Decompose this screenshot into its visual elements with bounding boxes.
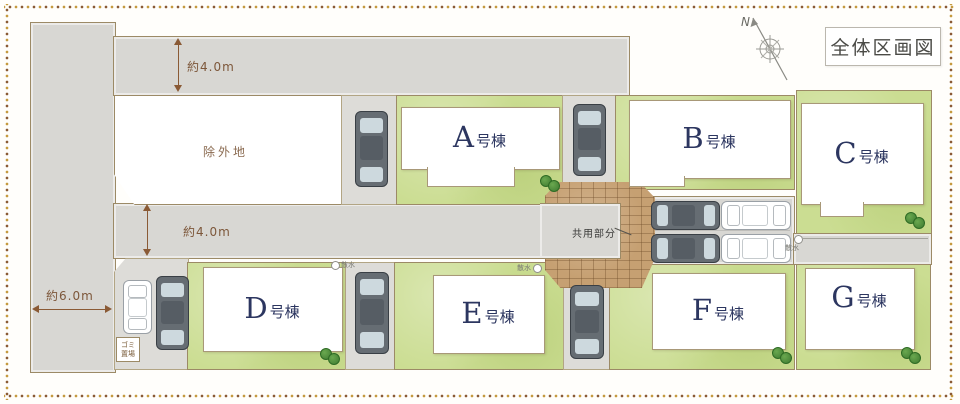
plan-title: 全体区画図 <box>830 33 935 60</box>
border-dots-top <box>4 4 956 10</box>
tap-label-strip: 散水 <box>785 245 799 252</box>
dimension-label-top: 約4.0m <box>187 58 235 75</box>
border-dots-left <box>4 4 10 400</box>
dimension-arrow-middle <box>143 204 152 256</box>
tap-circle-e <box>533 264 542 273</box>
excluded-land-label: 除外地 <box>203 143 248 160</box>
tap-circle-d <box>331 261 340 270</box>
building-b <box>629 100 791 179</box>
building-d <box>203 267 343 352</box>
parking-divider <box>650 230 790 231</box>
building-e <box>433 275 545 354</box>
building-c-extension <box>820 202 864 217</box>
car-lot-a <box>355 111 388 187</box>
building-g <box>805 268 915 350</box>
dimension-arrow-left <box>32 305 112 314</box>
car-lot-b <box>573 104 606 176</box>
car-lot-f <box>570 285 604 359</box>
car-lot-d <box>156 276 189 350</box>
compass-north-label: N <box>741 15 750 29</box>
road-left <box>30 22 116 373</box>
dimension-label-left: 約6.0m <box>46 287 94 304</box>
plan-title-box: 全体区画図 <box>825 27 941 66</box>
tap-label-e: 散水 <box>517 265 531 272</box>
shrubs-lot-f <box>772 347 792 363</box>
shrubs-lot-c <box>905 212 925 228</box>
compass: N <box>735 8 805 88</box>
building-f <box>652 273 786 350</box>
site-plan: A号棟 B号棟 C号棟 D号棟 E号棟 F号棟 G号棟 <box>0 0 960 404</box>
tap-circle-strip <box>794 235 803 244</box>
car-roof <box>360 136 383 160</box>
car-rear-window <box>360 167 383 182</box>
dimension-arrow-top <box>174 38 183 92</box>
tap-label-d: 散水 <box>341 262 355 269</box>
building-a-extension <box>427 167 515 187</box>
border-dots-bottom <box>4 393 956 399</box>
dimension-label-middle: 約4.0m <box>183 223 231 240</box>
garbage-area-box: ゴミ 置場 <box>116 337 140 362</box>
common-area-label: 共用部分 <box>572 225 616 240</box>
road-middle <box>113 203 562 259</box>
car-parking-row1-dark <box>651 201 720 230</box>
garbage-label-line2: 置場 <box>117 350 139 359</box>
car-windshield <box>360 118 383 133</box>
building-c <box>801 103 924 205</box>
shrubs-lot-d <box>320 348 340 364</box>
boundary-line-strip <box>802 238 928 239</box>
building-a <box>401 107 560 170</box>
car-lot-e <box>355 272 389 354</box>
car-parking-row2-dark <box>651 234 720 263</box>
building-b-extension <box>629 176 685 187</box>
car-parking-row1-outline <box>721 201 791 230</box>
car-parking-row2-outline <box>721 234 791 263</box>
car-outline-lot-d <box>123 280 152 334</box>
border-dots-right <box>948 4 954 400</box>
shrubs-lot-g <box>901 347 921 363</box>
garbage-label-line1: ゴミ <box>117 341 139 350</box>
shrubs-lot-a <box>540 175 560 191</box>
